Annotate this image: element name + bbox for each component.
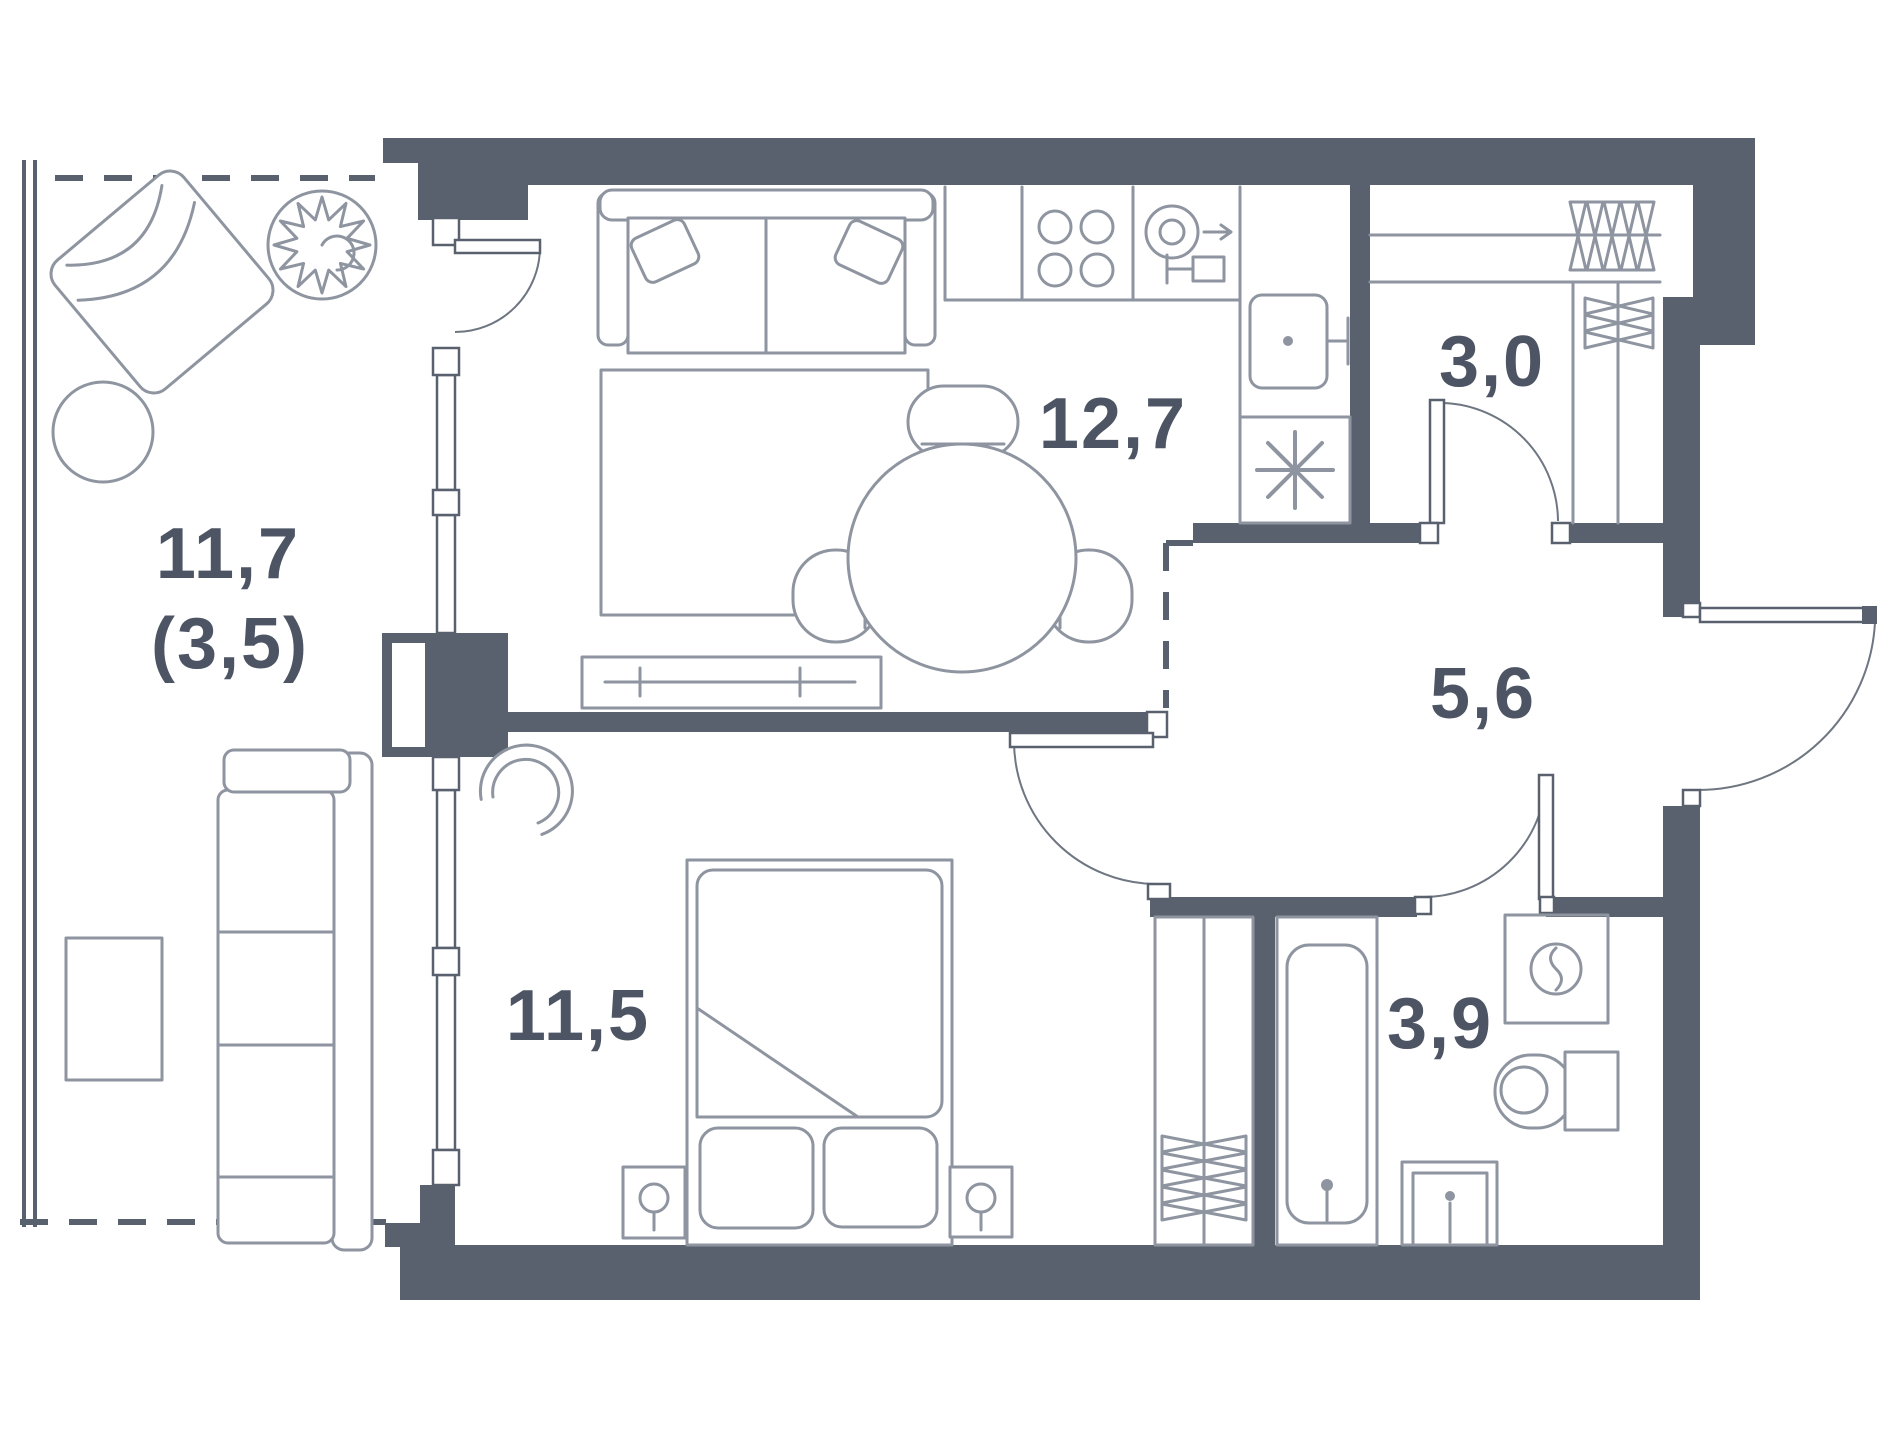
kitchen-living-area-label: 12,7 [1039, 384, 1187, 464]
pillar-frame [382, 633, 392, 757]
wall-segment [383, 138, 418, 163]
wall-bottom [400, 1245, 1700, 1300]
bathtub [1277, 917, 1377, 1245]
window-jamb [433, 757, 459, 790]
window-living [437, 375, 455, 490]
wall-storage-bottom [1562, 523, 1663, 543]
door-jamb [1683, 603, 1700, 617]
door-leaf [1010, 733, 1153, 747]
bedroom-area-label: 11,5 [506, 976, 650, 1056]
window-jamb [433, 1150, 459, 1185]
tv-console [582, 657, 881, 708]
window-jamb [433, 948, 459, 975]
wall-kitchen-bottom [1193, 523, 1422, 543]
bedroom-wardrobe [1155, 917, 1253, 1245]
window-bedroom [437, 790, 455, 948]
shelves-icon [1585, 298, 1653, 348]
window-jamb [433, 490, 459, 515]
toilet-tank [1565, 1052, 1618, 1130]
hood-inner [1160, 220, 1184, 244]
burner [1039, 211, 1071, 243]
door-leaf [1430, 400, 1444, 523]
bench-seat [218, 790, 334, 1243]
floor-plan: 11,7 (3,5) 12,7 3,0 5,6 11,5 3,9 [0, 0, 1896, 1432]
bench-cushion [224, 750, 350, 792]
window-jamb [433, 348, 459, 375]
sofa [598, 190, 935, 353]
hood-icon [1146, 206, 1231, 283]
balcony-furniture [44, 164, 376, 1250]
burner [1081, 211, 1113, 243]
bathroom-door [1415, 775, 1554, 914]
balcony-bench [218, 750, 372, 1250]
door-arc [1444, 403, 1558, 521]
fridge-icon [1240, 417, 1350, 523]
hood-outer [1146, 206, 1198, 258]
door-leaf [455, 240, 540, 253]
door-arc [1421, 777, 1546, 897]
bathtub-drain [1321, 1179, 1333, 1191]
hallway-area-label: 5,6 [1430, 654, 1536, 734]
bench-backrest [332, 753, 372, 1250]
balcony-secondary-area-label: (3,5) [151, 604, 309, 684]
door-jamb [1683, 790, 1700, 806]
door-leaf [1539, 775, 1553, 899]
lounge-chair-body [44, 164, 281, 401]
toilet-bowl [1495, 1055, 1573, 1128]
door-jamb [1420, 523, 1438, 543]
wall-kitchen-east [1350, 185, 1370, 543]
sofa-backrest [600, 190, 933, 220]
entry-door [1683, 603, 1877, 806]
nightstand-left [623, 1167, 685, 1238]
plant-icon [268, 191, 376, 299]
pillar-frame [382, 747, 425, 757]
door-leaf [1700, 608, 1875, 622]
bathroom-area-label: 3,9 [1387, 984, 1493, 1064]
stove-icon [1039, 211, 1113, 286]
balcony-area-label: 11,7 [156, 514, 300, 594]
wall-segment [418, 185, 528, 220]
bed-pillow [824, 1128, 937, 1227]
storage-door [1420, 400, 1570, 543]
burner [1081, 254, 1113, 286]
wall-bath-north-west [1150, 897, 1417, 917]
wall-bed-bath-divider [1253, 917, 1275, 1245]
wall-bedroom-north [455, 712, 1147, 732]
bed [687, 860, 952, 1245]
washing-machine-icon [1505, 915, 1608, 1023]
lounge-chair [44, 164, 281, 401]
nightstand-right [950, 1167, 1012, 1237]
balcony-railing [24, 160, 35, 1227]
floor-plan-canvas: 11,7 (3,5) 12,7 3,0 5,6 11,5 3,9 [0, 0, 1896, 1432]
storage-area-label: 3,0 [1439, 322, 1545, 402]
dining-table [848, 444, 1076, 672]
bedroom-door [1010, 712, 1170, 899]
door-jamb [1415, 897, 1431, 914]
door-jamb [1540, 897, 1554, 913]
bathroom-sink-icon [1402, 1162, 1497, 1245]
toilet [1495, 1052, 1618, 1130]
door-jamb [1552, 523, 1570, 543]
side-table [66, 938, 162, 1080]
window-bedroom [437, 975, 455, 1150]
wall-right-lower [1663, 806, 1700, 1300]
washer-wave [1551, 948, 1562, 990]
balcony-door [455, 240, 540, 332]
hood-box [1193, 257, 1224, 281]
wall-ne-corner [1693, 185, 1755, 345]
wall-top [418, 138, 1755, 185]
door-hinge-cap [1862, 606, 1877, 624]
wall-sw-corner [420, 1185, 455, 1247]
sink-drain [1445, 1191, 1455, 1201]
door-arc [1014, 741, 1157, 884]
pillar [425, 633, 508, 757]
burner [1039, 254, 1071, 286]
sink-drain [1283, 336, 1293, 346]
wall-segment [385, 1223, 420, 1247]
kitchen-sink-icon [1250, 295, 1348, 388]
door-jamb [1148, 884, 1170, 899]
bathroom-fixtures [1277, 915, 1618, 1245]
wall-right-upper [1663, 297, 1700, 617]
round-table [53, 382, 153, 482]
door-arc [1698, 622, 1875, 790]
bed-pillow [700, 1128, 813, 1228]
window-living [437, 515, 455, 633]
door-arc [455, 247, 540, 332]
